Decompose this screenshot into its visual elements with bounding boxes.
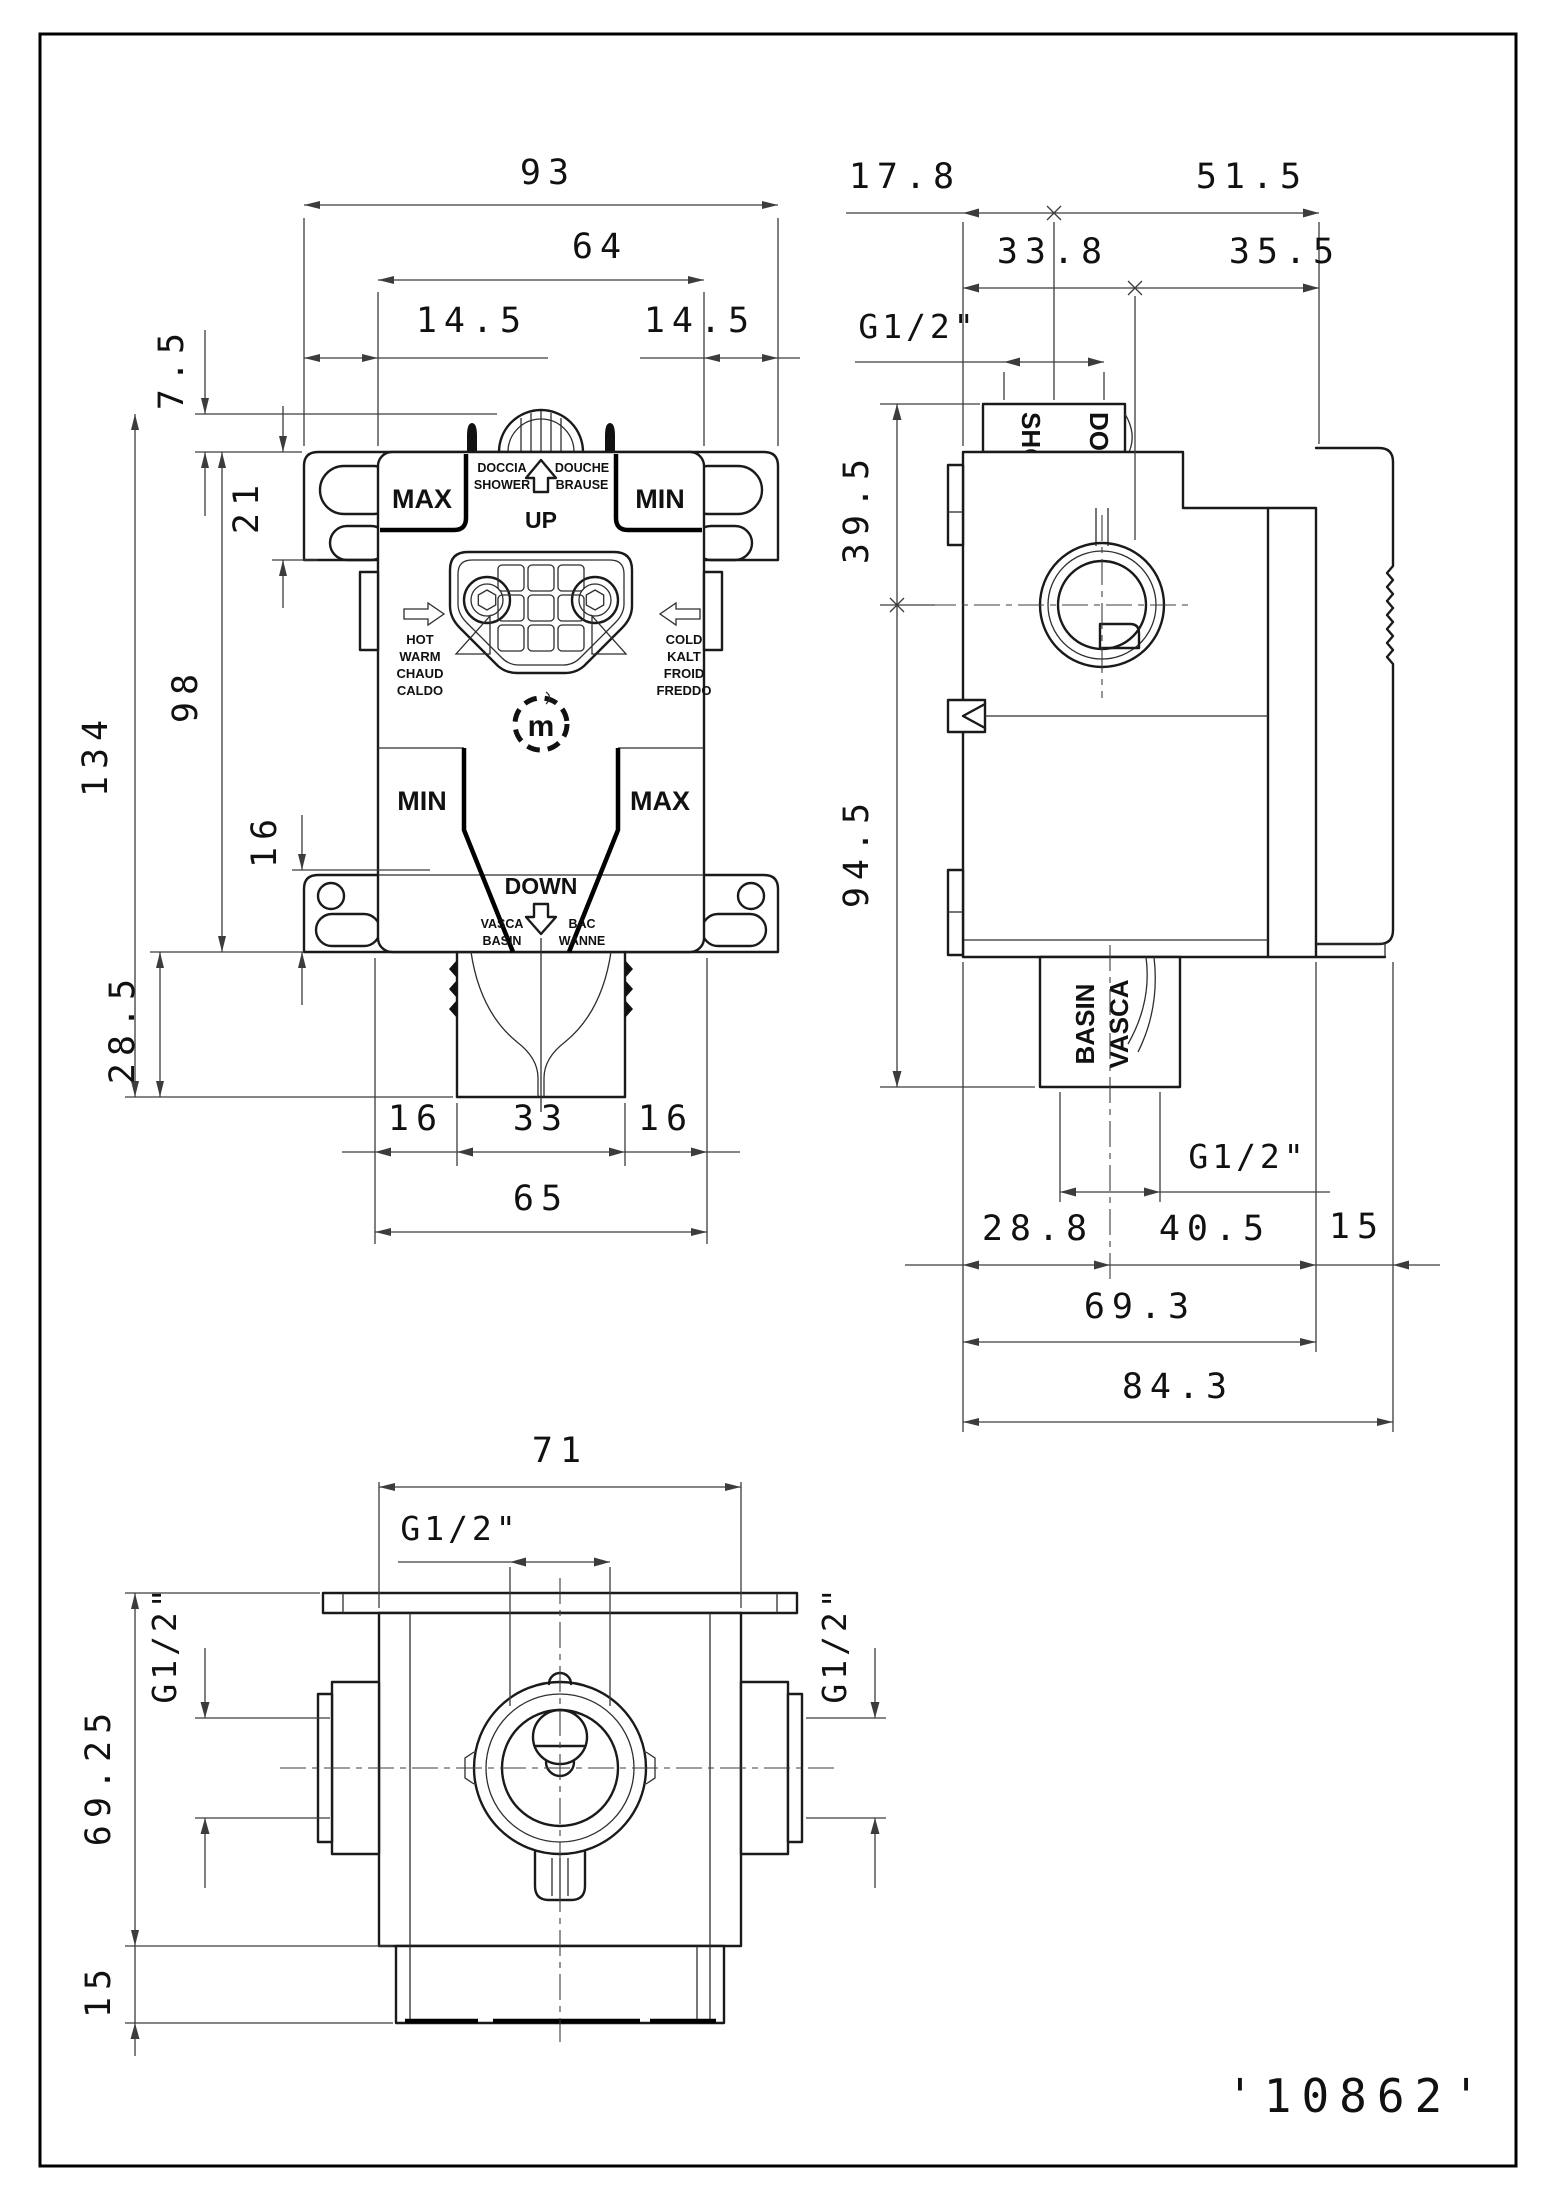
dim-front-total-height: 134 bbox=[76, 713, 116, 797]
dim-front-outlet-left: 16 bbox=[388, 1099, 444, 1139]
dim-front-body-width: 64 bbox=[572, 227, 628, 267]
dim-side-outlet-offset: 28.8 bbox=[982, 1209, 1094, 1249]
drawing-canvas: MAX MIN DOCCIA SHOWER DOUCHE BRAUSE UP H… bbox=[0, 0, 1555, 2200]
dim-top-body-width: 71 bbox=[532, 1431, 588, 1471]
label-brause: BRAUSE bbox=[556, 478, 609, 492]
dim-side-center-height: 39.5 bbox=[837, 452, 877, 564]
dim-front-outlet-span: 65 bbox=[513, 1179, 569, 1219]
label-basin: BASIN bbox=[483, 934, 522, 948]
label-cold: COLD bbox=[666, 632, 703, 647]
label-up: UP bbox=[525, 507, 557, 533]
dim-front-flange-step: 16 bbox=[245, 812, 285, 868]
dim-side-face-to-center: 33.8 bbox=[997, 232, 1109, 272]
dim-top-thread-right: G1/2" bbox=[815, 1584, 854, 1703]
label-min-top: MIN bbox=[635, 484, 685, 514]
label-max-top: MAX bbox=[392, 484, 452, 514]
dim-front-offset-left: 14.5 bbox=[416, 301, 528, 341]
label-min-bottom: MIN bbox=[397, 786, 447, 816]
dim-side-thread-top: G1/2" bbox=[858, 307, 977, 346]
brand-logo-letter: m bbox=[528, 710, 555, 743]
dim-side-pipe-to-face: 51.5 bbox=[1196, 157, 1308, 197]
label-douche: DOUCHE bbox=[555, 461, 609, 475]
dim-top-base-depth: 15 bbox=[79, 1962, 119, 2018]
dim-front-slot-depth: 21 bbox=[227, 478, 267, 534]
label-warm: WARM bbox=[399, 649, 440, 664]
label-caldo: CALDO bbox=[397, 683, 443, 698]
dim-front-stub-height: 7.5 bbox=[152, 326, 192, 410]
dim-top-depth-to-flange: 69.25 bbox=[79, 1706, 119, 1846]
front-fixing-pin-left bbox=[467, 423, 477, 452]
dim-front-body-height: 98 bbox=[166, 667, 206, 723]
part-number: '10862' bbox=[1226, 2069, 1490, 2123]
label-kalt: KALT bbox=[667, 649, 701, 664]
label-chaud: CHAUD bbox=[397, 666, 444, 681]
label-bac: BAC bbox=[568, 917, 595, 931]
dim-front-outlet-right: 16 bbox=[638, 1099, 694, 1139]
side-marking-basin: BASIN bbox=[1070, 984, 1100, 1065]
dim-side-center-to-face: 35.5 bbox=[1229, 232, 1341, 272]
label-doccia: DOCCIA bbox=[477, 461, 526, 475]
dim-side-body-drop: 94.5 bbox=[837, 796, 877, 908]
side-marking-vasca: VASCA bbox=[1104, 979, 1134, 1068]
front-port-left bbox=[360, 572, 378, 650]
dim-side-cap-width: 15 bbox=[1329, 1207, 1385, 1247]
label-froid: FROID bbox=[664, 666, 704, 681]
side-tab-upper bbox=[948, 465, 963, 545]
label-shower: SHOWER bbox=[474, 478, 530, 492]
side-notch-tab bbox=[948, 700, 985, 732]
dim-front-outlet-drop: 28.5 bbox=[103, 972, 143, 1084]
label-vasca: VASCA bbox=[481, 917, 524, 931]
front-port-right bbox=[704, 572, 722, 650]
label-wanne: WANNE bbox=[559, 934, 606, 948]
front-fixing-pin-right bbox=[605, 423, 615, 452]
dim-top-thread-left: G1/2" bbox=[145, 1584, 184, 1703]
dim-front-total-width: 93 bbox=[520, 153, 576, 193]
dim-side-outlet-to-cap: 40.5 bbox=[1159, 1209, 1271, 1249]
label-freddo: FREDDO bbox=[657, 683, 712, 698]
dim-side-pipe-offset: 17.8 bbox=[849, 157, 961, 197]
dim-side-thread-bottom: G1/2" bbox=[1188, 1137, 1307, 1176]
dim-side-total-depth: 84.3 bbox=[1122, 1367, 1234, 1407]
dim-top-thread-center: G1/2" bbox=[400, 1509, 519, 1548]
side-valve-body bbox=[963, 452, 1316, 957]
label-max-bottom: MAX bbox=[630, 786, 690, 816]
technical-drawing-page: MAX MIN DOCCIA SHOWER DOUCHE BRAUSE UP H… bbox=[0, 0, 1555, 2200]
dim-front-offset-right: 14.5 bbox=[644, 301, 756, 341]
label-hot: HOT bbox=[406, 632, 434, 647]
dim-side-body-depth: 69.3 bbox=[1084, 1287, 1196, 1327]
dim-front-outlet-width: 33 bbox=[513, 1099, 569, 1139]
label-down: DOWN bbox=[505, 873, 578, 899]
